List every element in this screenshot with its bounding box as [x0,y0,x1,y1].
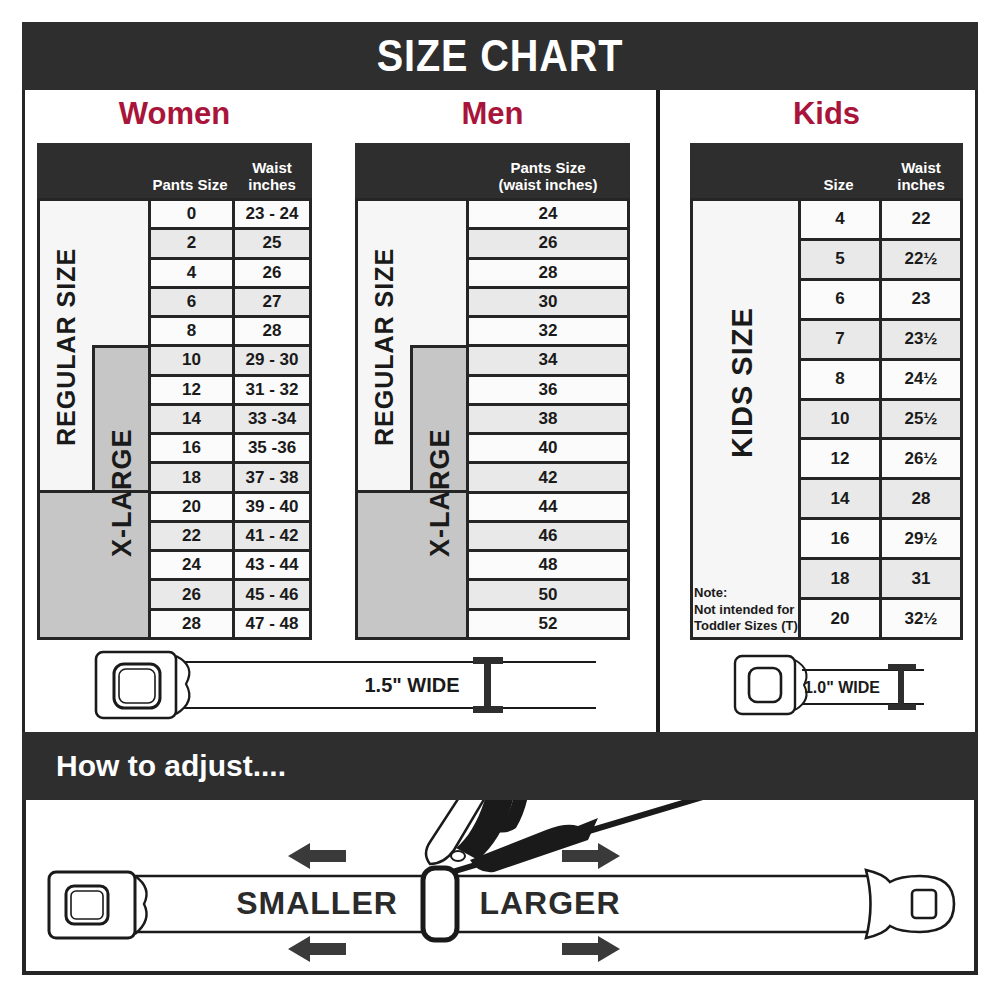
table-cell: 23½ [879,318,963,361]
table-cell: 14 [148,403,235,435]
kids-table-header: Size Waist inches [690,143,963,198]
adult-belt-width-label: 1.5" WIDE [364,674,459,696]
table-row: 023 - 24 [148,198,312,230]
adjust-illustration: SMALLER LARGER [26,800,974,967]
table-cell: 36 [466,374,630,406]
table-cell: 6 [148,286,235,318]
women-section-label: Women [37,96,312,132]
table-row: 1029 - 30 [148,344,312,376]
table-row: 36 [466,374,630,406]
men-section-label: Men [355,96,630,132]
table-cell: 45 - 46 [232,578,312,610]
kids-section-label: Kids [690,96,963,132]
arrow-left-icon [288,936,346,962]
table-row: 30 [466,286,630,318]
table-cell: 52 [466,608,630,640]
kids-size-table: Size Waist inches KIDS SIZE Note: Not in… [690,143,963,640]
table-cell: 34 [466,344,630,376]
table-row: 38 [466,403,630,435]
table-row: 42 [466,461,630,493]
arrow-right-icon [562,936,620,962]
seatbelt-buckle-icon [96,652,189,718]
table-row: 824½ [798,358,963,401]
table-cell: 43 - 44 [232,549,312,581]
table-cell: 32 [466,315,630,347]
table-cell: 22½ [879,238,963,281]
table-cell: 23 [879,278,963,321]
adjust-illustration-box: SMALLER LARGER [22,800,978,975]
table-row: 1629½ [798,517,963,560]
table-row: 28 [466,257,630,289]
table-row: 50 [466,578,630,610]
table-cell: 0 [148,198,235,230]
table-cell: 12 [798,437,882,480]
table-cell: 46 [466,520,630,552]
table-row: 32 [466,315,630,347]
table-row: 46 [466,520,630,552]
table-cell: 12 [148,374,235,406]
table-row: 1635 -36 [148,432,312,464]
kids-belt-illustration: 1.0" WIDE [730,652,940,724]
table-row: 2443 - 44 [148,549,312,581]
how-to-adjust-title: How to adjust.... [22,732,978,800]
table-cell: 48 [466,549,630,581]
table-cell: 25 [232,227,312,259]
table-row: 48 [466,549,630,581]
table-row: 1025½ [798,398,963,441]
kids-table-rows: 422522½623723½824½1025½1226½14281629½183… [798,198,963,640]
table-cell: 26 [232,257,312,289]
table-cell: 8 [148,315,235,347]
table-cell: 16 [148,432,235,464]
table-cell: 29 - 30 [232,344,312,376]
table-cell: 44 [466,491,630,523]
table-row: 828 [148,315,312,347]
table-cell: 39 - 40 [232,491,312,523]
table-row: 52 [466,608,630,640]
table-row: 44 [466,491,630,523]
table-cell: 22 [148,520,235,552]
kids-waist-header: Waist inches [879,159,963,194]
arrow-left-icon [288,843,346,869]
kids-size-vertical-label: KIDS SIZE [712,213,772,553]
table-cell: 50 [466,578,630,610]
seatbelt-buckle-icon [735,656,807,714]
table-cell: 4 [798,198,882,241]
table-cell: 28 [148,608,235,640]
women-xlarge-label: X-LARGE [97,348,147,638]
table-cell: 32½ [879,597,963,640]
table-row: 26 [466,227,630,259]
table-cell: 31 [879,557,963,600]
table-cell: 33 -34 [232,403,312,435]
table-row: 422 [798,198,963,241]
table-row: 1226½ [798,437,963,480]
table-cell: 8 [798,358,882,401]
table-cell: 18 [798,557,882,600]
table-cell: 29½ [879,517,963,560]
men-regular-size-label: REGULAR SIZE [361,203,407,491]
how-to-adjust-band: How to adjust.... [22,732,978,800]
arrow-right-icon [562,843,620,869]
women-table-header: Pants Size Waist inches [37,143,312,198]
kids-note: Note: Not intended for Toddler Sizes (T) [694,585,798,634]
title-band: SIZE CHART [22,22,978,90]
table-cell: 35 -36 [232,432,312,464]
women-table-rows: 023 - 242254266278281029 - 301231 - 3214… [148,198,312,640]
table-cell: 28 [879,477,963,520]
table-row: 2847 - 48 [148,608,312,640]
adult-belt-illustration: 1.5" WIDE [90,648,610,730]
women-size-table: Pants Size Waist inches REGULAR SIZE X-L… [37,143,312,640]
table-cell: 24½ [879,358,963,401]
table-cell: 26 [148,578,235,610]
belt-tip [866,870,954,938]
table-row: 723½ [798,318,963,361]
table-cell: 47 - 48 [232,608,312,640]
men-pants-size-header: Pants Size (waist inches) [466,159,630,194]
table-row: 2241 - 42 [148,520,312,552]
women-waist-header: Waist inches [232,159,312,194]
table-row: 1837 - 38 [148,461,312,493]
page-title: SIZE CHART [377,31,624,81]
table-cell: 27 [232,286,312,318]
table-row: 522½ [798,238,963,281]
kids-belt-width-label: 1.0" WIDE [804,679,880,696]
table-cell: 16 [798,517,882,560]
table-row: 2039 - 40 [148,491,312,523]
table-cell: 4 [148,257,235,289]
table-cell: 22 [879,198,963,241]
table-row: 1831 [798,557,963,600]
belt-tip-hole [912,890,936,918]
table-cell: 7 [798,318,882,361]
women-pants-size-header: Pants Size [148,176,232,193]
table-row: 24 [466,198,630,230]
table-row: 2645 - 46 [148,578,312,610]
belt-slider-clip [423,868,457,940]
table-row: 1428 [798,477,963,520]
table-cell: 38 [466,403,630,435]
table-cell: 30 [466,286,630,318]
table-cell: 20 [798,597,882,640]
table-row: 40 [466,432,630,464]
table-cell: 10 [798,398,882,441]
table-cell: 28 [232,315,312,347]
larger-label: LARGER [479,885,620,921]
men-table-rows: 242628303234363840424446485052 [466,198,630,640]
table-cell: 10 [148,344,235,376]
width-measure-bracket-icon [473,657,503,713]
kids-size-header: Size [798,176,879,193]
table-row: 1433 -34 [148,403,312,435]
table-cell: 23 - 24 [232,198,312,230]
table-cell: 2 [148,227,235,259]
table-cell: 18 [148,461,235,493]
table-cell: 26 [466,227,630,259]
women-regular-size-label: REGULAR SIZE [43,203,89,491]
seatbelt-buckle-icon [49,872,147,938]
table-cell: 26½ [879,437,963,480]
table-cell: 24 [466,198,630,230]
kids-section-divider [656,90,660,732]
table-row: 2032½ [798,597,963,640]
size-chart-page: SIZE CHART Women Men Kids Pants Size Wai… [0,0,1000,1000]
table-cell: 14 [798,477,882,520]
table-row: 34 [466,344,630,376]
table-cell: 6 [798,278,882,321]
men-table-header: Pants Size (waist inches) [355,143,630,198]
men-size-table: Pants Size (waist inches) REGULAR SIZE X… [355,143,630,640]
men-xlarge-label: X-LARGE [415,348,465,638]
table-row: 426 [148,257,312,289]
table-row: 225 [148,227,312,259]
table-row: 627 [148,286,312,318]
table-cell: 20 [148,491,235,523]
smaller-label: SMALLER [236,885,398,921]
table-cell: 31 - 32 [232,374,312,406]
table-cell: 5 [798,238,882,281]
table-cell: 25½ [879,398,963,441]
table-cell: 37 - 38 [232,461,312,493]
table-cell: 41 - 42 [232,520,312,552]
table-row: 623 [798,278,963,321]
table-row: 1231 - 32 [148,374,312,406]
table-cell: 24 [148,549,235,581]
table-cell: 28 [466,257,630,289]
table-cell: 40 [466,432,630,464]
table-cell: 42 [466,461,630,493]
